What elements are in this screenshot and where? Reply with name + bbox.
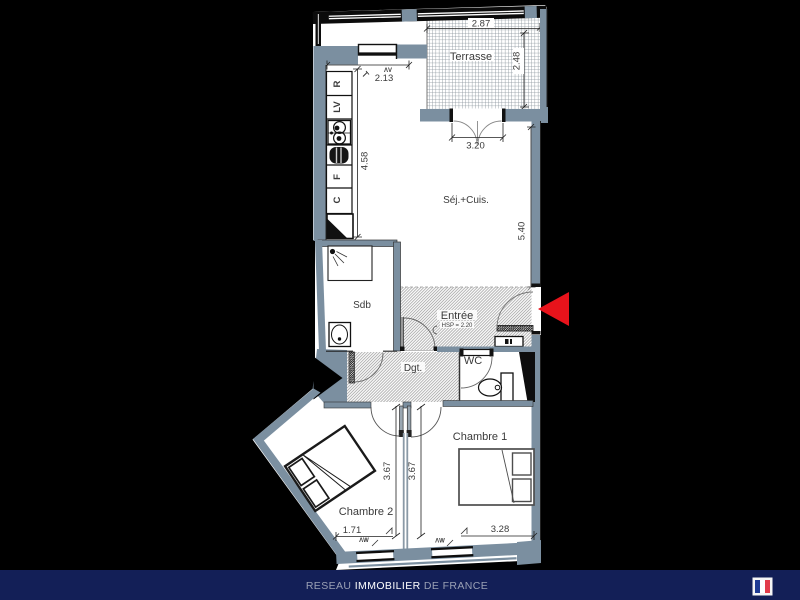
svg-text:5.40: 5.40 [517, 222, 528, 241]
svg-text:RESEAU IMMOBILIER DE FRANCE: RESEAU IMMOBILIER DE FRANCE [306, 580, 488, 592]
svg-text:R: R [332, 80, 343, 87]
svg-text:3.67: 3.67 [407, 462, 418, 481]
svg-text:3.67: 3.67 [382, 462, 393, 481]
svg-text:ΛW: ΛW [359, 538, 369, 544]
svg-text:Dgt.: Dgt. [404, 363, 422, 374]
svg-text:4.58: 4.58 [360, 152, 371, 171]
svg-text:2.48: 2.48 [512, 52, 523, 71]
svg-text:Entrée: Entrée [441, 310, 473, 322]
svg-text:HSP = 2.20: HSP = 2.20 [442, 323, 473, 329]
svg-text:C: C [332, 196, 343, 203]
svg-text:2.87: 2.87 [472, 19, 491, 30]
svg-text:ΛW: ΛW [435, 539, 445, 545]
svg-text:Sdb: Sdb [353, 300, 371, 311]
svg-text:Séj.+Cuis.: Séj.+Cuis. [443, 195, 489, 206]
svg-text:Terrasse: Terrasse [450, 51, 492, 63]
svg-text:3.28: 3.28 [491, 524, 510, 535]
svg-text:WC: WC [464, 355, 482, 367]
svg-text:LV: LV [332, 101, 343, 113]
svg-text:3.20: 3.20 [466, 141, 485, 152]
svg-text:1.71: 1.71 [343, 525, 362, 536]
svg-text:2.13: 2.13 [375, 73, 394, 84]
svg-text:Chambre 2: Chambre 2 [339, 506, 393, 518]
svg-text:Chambre 1: Chambre 1 [453, 431, 507, 443]
svg-text:F: F [332, 174, 343, 180]
